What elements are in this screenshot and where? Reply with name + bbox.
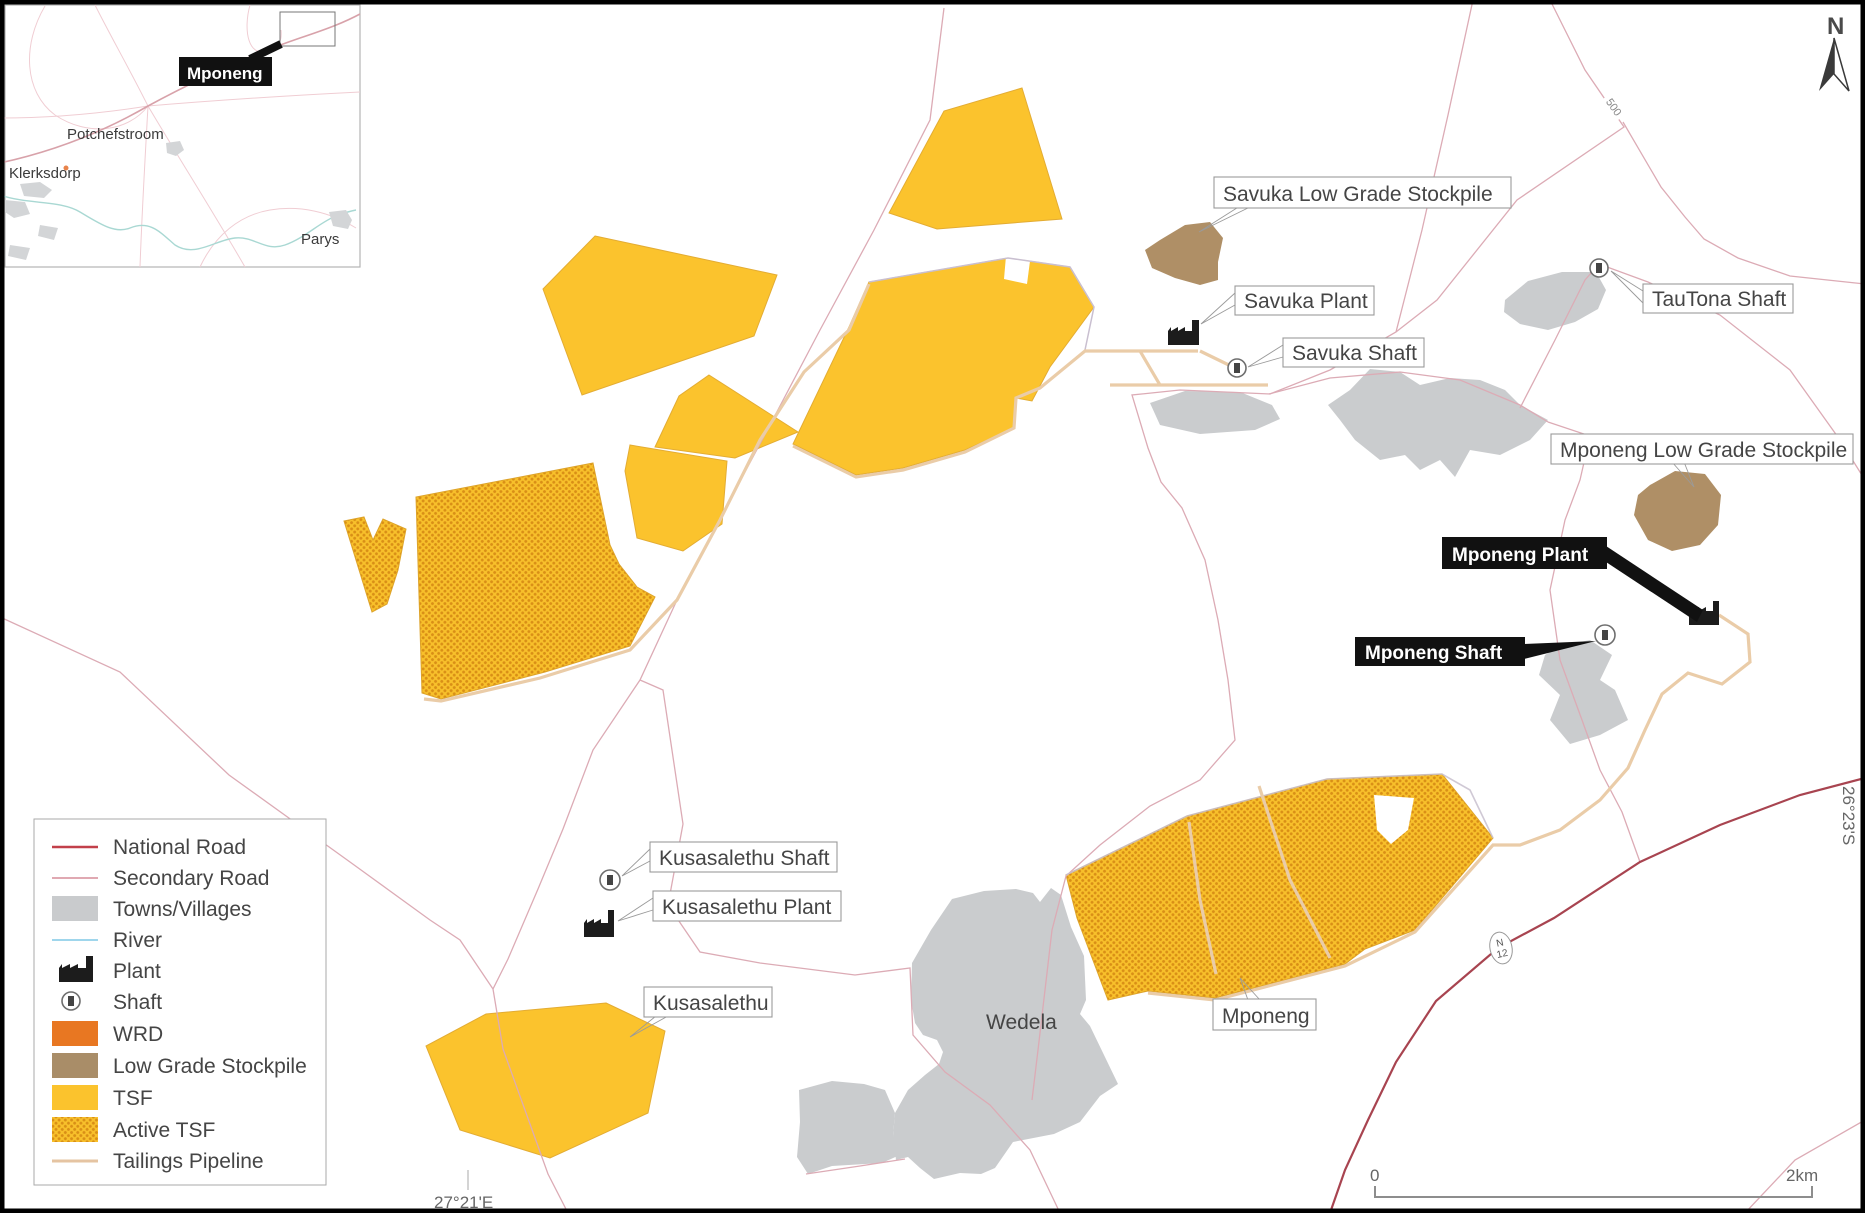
svg-text:TauTona Shaft: TauTona Shaft <box>1652 288 1786 311</box>
svg-text:Mponeng Plant: Mponeng Plant <box>1452 545 1589 566</box>
svg-text:Kusasalethu: Kusasalethu <box>653 992 769 1015</box>
svg-text:Shaft: Shaft <box>113 991 162 1014</box>
svg-text:2km: 2km <box>1786 1166 1818 1185</box>
svg-text:TSF: TSF <box>113 1087 153 1110</box>
svg-text:Towns/Villages: Towns/Villages <box>113 898 252 921</box>
svg-text:Active TSF: Active TSF <box>113 1119 215 1142</box>
svg-text:N: N <box>1827 13 1844 40</box>
svg-text:Plant: Plant <box>113 960 161 983</box>
svg-text:WRD: WRD <box>113 1023 163 1046</box>
svg-text:Savuka Shaft: Savuka Shaft <box>1292 342 1417 365</box>
svg-text:Mponeng Low Grade Stockpile: Mponeng Low Grade Stockpile <box>1560 439 1847 462</box>
svg-text:National Road: National Road <box>113 836 246 859</box>
svg-text:Klerksdorp: Klerksdorp <box>9 165 81 182</box>
svg-text:Low Grade Stockpile: Low Grade Stockpile <box>113 1055 307 1078</box>
svg-text:Wedela: Wedela <box>986 1011 1057 1034</box>
svg-text:Secondary Road: Secondary Road <box>113 867 269 890</box>
svg-text:Tailings Pipeline: Tailings Pipeline <box>113 1150 264 1173</box>
svg-text:Parys: Parys <box>301 231 339 248</box>
svg-text:River: River <box>113 929 162 952</box>
svg-text:Kusasalethu Shaft: Kusasalethu Shaft <box>659 847 830 870</box>
svg-text:Savuka Low Grade Stockpile: Savuka Low Grade Stockpile <box>1223 183 1493 206</box>
svg-text:0: 0 <box>1370 1166 1379 1185</box>
svg-text:Savuka Plant: Savuka Plant <box>1244 290 1368 313</box>
svg-text:Kusasalethu Plant: Kusasalethu Plant <box>662 896 831 919</box>
svg-text:Potchefstroom: Potchefstroom <box>67 126 164 143</box>
svg-text:Mponeng: Mponeng <box>187 64 263 83</box>
svg-text:Mponeng: Mponeng <box>1222 1005 1310 1028</box>
svg-text:26°23'S: 26°23'S <box>1839 786 1858 845</box>
svg-text:Mponeng Shaft: Mponeng Shaft <box>1365 643 1503 664</box>
